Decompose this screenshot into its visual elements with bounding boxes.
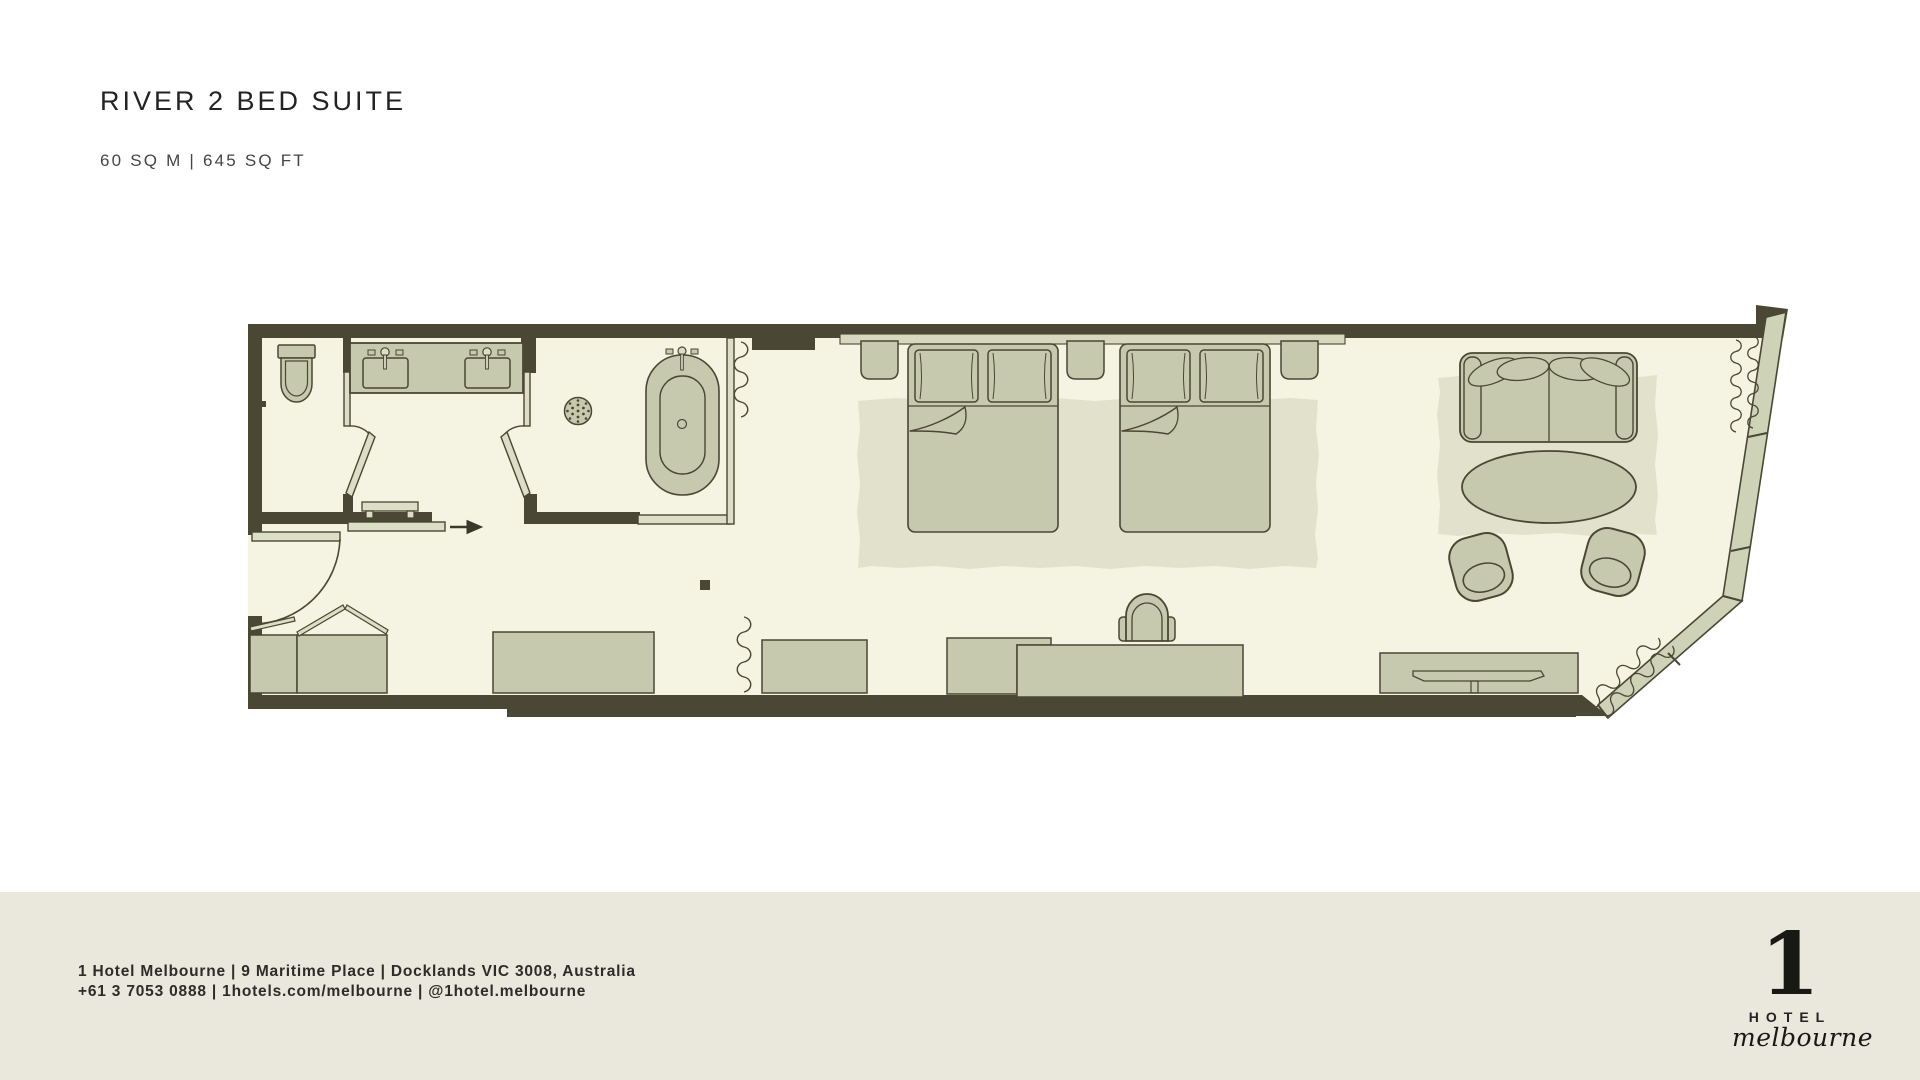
room-area: 60 SQ M | 645 SQ FT xyxy=(100,151,406,171)
tv xyxy=(1413,671,1544,681)
minibar-unit xyxy=(762,640,867,693)
floorplan-page: RIVER 2 BED SUITE 60 SQ M | 645 SQ FT 1 … xyxy=(0,0,1920,1080)
bed-1 xyxy=(908,344,1058,532)
oval-table xyxy=(1462,451,1636,523)
bed-2 xyxy=(1120,344,1270,532)
bathtub xyxy=(646,347,719,495)
logo-city-word: melbourne xyxy=(1732,1026,1848,1050)
hotel-logo: 1 HOTEL melbourne xyxy=(1732,926,1848,1050)
tv-console xyxy=(1380,653,1578,693)
sink-right xyxy=(465,348,510,388)
toilet xyxy=(278,345,315,402)
page-title: RIVER 2 BED SUITE xyxy=(100,86,406,117)
double-vanity xyxy=(350,343,523,393)
footer-contact: 1 Hotel Melbourne | 9 Maritime Place | D… xyxy=(78,962,636,1002)
desk xyxy=(1017,645,1243,697)
shower-head xyxy=(565,398,592,425)
sink-left xyxy=(363,348,408,388)
credenza xyxy=(493,632,654,693)
footer-address: 1 Hotel Melbourne | 9 Maritime Place | D… xyxy=(78,962,636,982)
logo-numeral: 1 xyxy=(1732,926,1848,1004)
header: RIVER 2 BED SUITE 60 SQ M | 645 SQ FT xyxy=(100,86,406,171)
footer-phone-web: +61 3 7053 0888 | 1hotels.com/melbourne … xyxy=(78,982,636,1002)
sofa xyxy=(1460,352,1637,442)
